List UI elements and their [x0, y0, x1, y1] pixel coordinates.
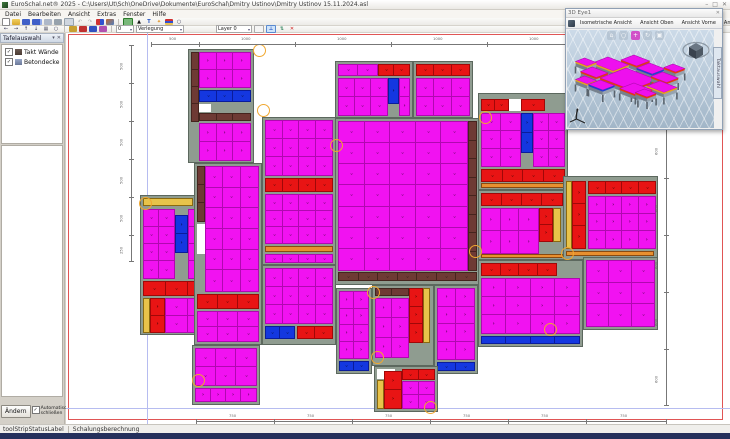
plan-panel-cell[interactable] — [469, 178, 476, 197]
plan-panel-cell[interactable]: › — [365, 164, 391, 185]
plan-panel-cell[interactable]: › — [339, 228, 365, 249]
plan-panel-cell[interactable]: › — [400, 97, 409, 115]
plan-panel-cell[interactable]: › — [482, 264, 501, 275]
plan-panel-cell[interactable]: › — [365, 122, 391, 143]
plan-panel-cell[interactable]: › — [522, 133, 532, 152]
plan-panel-cell[interactable]: › — [441, 164, 467, 185]
plan-panel-cell[interactable]: › — [417, 273, 437, 280]
taktauswahl-side-tab[interactable]: Taktauswahl — [713, 47, 722, 99]
plan-panel-block[interactable]: ›› — [384, 371, 402, 409]
plan-panel-cell[interactable]: › — [622, 214, 639, 231]
plan-panel-cell[interactable]: › — [339, 97, 355, 115]
menu-item-extras[interactable]: Extras — [97, 11, 116, 18]
plan-panel-cell[interactable]: › — [519, 209, 538, 231]
plan-panel-cell[interactable]: › — [266, 327, 280, 338]
plan-panel-block[interactable]: ›››››››› — [143, 209, 175, 279]
plan-panel-cell[interactable]: › — [456, 324, 474, 342]
plan-panel-cell[interactable]: › — [437, 273, 457, 280]
plan-panel-block[interactable]: ›› — [297, 326, 333, 339]
plan-panel-cell[interactable]: › — [482, 149, 501, 166]
plan-panel-cell[interactable]: › — [200, 91, 217, 101]
plan-panel-cell[interactable]: › — [241, 389, 256, 401]
plan-panel-block[interactable]: ›››››› — [416, 78, 470, 116]
view-button-ansicht-seite[interactable]: Ansicht Seite — [721, 18, 730, 28]
plan-panel-cell[interactable]: › — [217, 142, 234, 160]
plan-panel-cell[interactable]: › — [316, 179, 333, 191]
plan-panel-cell[interactable]: › — [198, 312, 218, 327]
plan-panel-cell[interactable]: › — [378, 273, 398, 280]
plan-panel-cell[interactable]: › — [501, 149, 520, 166]
plan-panel-cell[interactable]: › — [223, 229, 240, 250]
tree-item-checkbox[interactable]: ✓ — [5, 48, 13, 56]
plan-panel-cell[interactable]: › — [340, 325, 354, 342]
plan-panel-cell[interactable] — [469, 159, 476, 178]
plan-panel-cell[interactable]: › — [241, 188, 258, 209]
maximize-button[interactable]: □ — [712, 1, 718, 8]
blank-tool-icon[interactable] — [254, 25, 264, 33]
orbit-icon[interactable]: ○ — [619, 31, 628, 40]
plan-panel-cell[interactable]: › — [198, 295, 218, 308]
plan-panel-cell[interactable]: › — [639, 231, 656, 248]
plan-panel-cell[interactable]: › — [266, 227, 283, 243]
plan-panel-cell[interactable]: › — [217, 124, 234, 142]
plan-panel-cell[interactable]: › — [159, 244, 174, 261]
plan-panel-cell[interactable]: › — [573, 182, 585, 204]
plan-panel-cell[interactable]: › — [606, 231, 623, 248]
plan-panel-cell[interactable]: › — [233, 53, 250, 70]
plan-panel-cell[interactable]: › — [456, 273, 476, 280]
plan-panel-block[interactable]: ›››››››››››› — [265, 194, 333, 244]
plan-panel-cell[interactable]: › — [639, 182, 656, 193]
undo-icon[interactable]: ↶ — [76, 19, 84, 25]
plan-panel-cell[interactable]: › — [523, 170, 544, 181]
plan-panel-cell[interactable]: › — [482, 231, 501, 253]
plan-panel-cell[interactable]: › — [354, 362, 368, 370]
plan-panel-cell[interactable]: › — [639, 214, 656, 231]
plan-panel-cell[interactable]: › — [283, 269, 300, 287]
plan-panel-block[interactable]: ›››› — [481, 169, 565, 182]
plan-panel-cell[interactable]: › — [390, 164, 416, 185]
arrow-right-icon[interactable]: → — [12, 26, 20, 32]
plan-panel-block[interactable]: ›››››› — [199, 123, 251, 161]
plan-panel-cell[interactable]: › — [299, 139, 316, 157]
plan-panel-cell[interactable]: › — [542, 194, 562, 205]
plan-panel-cell[interactable]: › — [519, 264, 538, 275]
plan-panel-cell[interactable]: › — [403, 395, 419, 408]
plan-panel-cell[interactable]: › — [371, 79, 387, 97]
plan-panel-cell[interactable]: › — [299, 211, 316, 227]
plan-panel-block[interactable]: ›››››››››››››››››› — [205, 166, 259, 292]
plan-panel-cell[interactable]: › — [238, 295, 258, 308]
plan-panel-cell[interactable]: › — [555, 297, 579, 315]
plan-panel-cell[interactable]: › — [549, 131, 564, 148]
minimize-button[interactable]: – — [705, 1, 708, 8]
plan-panel-block[interactable]: ›› — [481, 99, 509, 111]
menu-item-ansicht[interactable]: Ansicht — [68, 11, 90, 18]
plan-panel-cell[interactable]: › — [606, 197, 623, 214]
plan-panel-cell[interactable]: › — [316, 255, 333, 262]
plan-panel-cell[interactable]: › — [632, 304, 654, 326]
plan-panel-cell[interactable]: › — [211, 389, 226, 401]
plan-panel-cell[interactable]: › — [316, 269, 333, 287]
plan-strip-orange[interactable] — [481, 254, 563, 258]
plan-panel-cell[interactable]: › — [549, 114, 564, 131]
plan-panel-cell[interactable]: › — [339, 122, 365, 143]
plan-panel-cell[interactable]: › — [392, 318, 408, 337]
plan-panel-cell[interactable]: › — [315, 327, 332, 338]
plan-panel-block[interactable]: ›››› — [195, 388, 257, 402]
plan-panel-block[interactable] — [199, 113, 251, 121]
plan-panel-cell[interactable]: › — [144, 282, 166, 295]
plan-panel-cell[interactable] — [469, 196, 476, 215]
plan-panel-cell[interactable]: › — [394, 65, 409, 75]
plan-panel-cell[interactable]: › — [299, 269, 316, 287]
plan-panel-block[interactable]: ››››››››› — [586, 260, 655, 327]
plan-panel-cell[interactable]: › — [456, 363, 474, 370]
plan-panel-block[interactable]: ››› — [197, 294, 259, 309]
plan-panel-cell[interactable]: › — [482, 131, 501, 148]
plan-panel-cell[interactable]: › — [166, 299, 188, 316]
plan-panel-block[interactable]: ›››››››› — [437, 288, 475, 360]
plan-panel-cell[interactable]: › — [392, 338, 408, 357]
plan-panel-cell[interactable]: › — [589, 214, 606, 231]
plan-panel-cell[interactable]: › — [151, 299, 164, 316]
plan-panel-cell[interactable]: › — [419, 382, 435, 395]
plan-panel-cell[interactable]: › — [379, 65, 394, 75]
plan-panel-cell[interactable]: › — [283, 121, 300, 139]
plan-panel-cell[interactable] — [198, 203, 204, 221]
plan-panel-cell[interactable]: › — [339, 65, 358, 75]
plan-panel-block[interactable] — [197, 166, 205, 222]
plan-panel-block[interactable]: ›››››››››››› — [481, 278, 580, 334]
plan-panel-cell[interactable]: › — [609, 261, 631, 283]
plan-panel-cell[interactable] — [200, 114, 217, 120]
view-button-isometrische-ansicht[interactable]: Isometrische Ansicht — [577, 18, 635, 28]
plan-panel-cell[interactable] — [192, 87, 198, 104]
plan-panel-cell[interactable]: › — [371, 97, 387, 115]
plan-panel-cell[interactable]: › — [365, 143, 391, 164]
plan-panel-cell[interactable]: › — [392, 299, 408, 318]
viewer3d-viewport[interactable]: ⌂○+↻▣ — [567, 30, 714, 128]
viewer3d-titlebar[interactable]: 3D Eye1 ✕ — [566, 9, 722, 18]
plan-panel-cell[interactable]: › — [206, 229, 223, 250]
plan-panel-cell[interactable]: › — [316, 121, 333, 139]
menu-item-hilfe[interactable]: Hilfe — [152, 11, 166, 18]
change-button[interactable]: Ändern — [1, 405, 31, 418]
plan-panel-cell[interactable]: › — [587, 283, 609, 305]
plan-panel-cell[interactable]: › — [283, 211, 300, 227]
plan-panel-block[interactable]: ›› — [437, 362, 475, 371]
plan-panel-cell[interactable]: › — [299, 255, 316, 262]
plan-panel-cell[interactable]: › — [298, 327, 315, 338]
plan-panel-cell[interactable]: › — [482, 315, 506, 333]
plan-panel-cell[interactable]: › — [456, 342, 474, 360]
plan-panel-cell[interactable]: › — [316, 287, 333, 305]
plan-panel-cell[interactable]: › — [159, 227, 174, 244]
plan-panel-cell[interactable]: › — [506, 315, 530, 333]
print-preview-icon[interactable] — [64, 18, 74, 26]
plan-panel-cell[interactable]: › — [416, 164, 442, 185]
plan-panel-cell[interactable]: › — [417, 97, 434, 115]
plan-strip-orange[interactable] — [566, 251, 654, 256]
plan-panel-block[interactable]: ››› — [199, 90, 251, 102]
plan-panel-cell[interactable]: › — [266, 195, 283, 211]
plan-panel-cell[interactable]: › — [151, 316, 164, 333]
plan-panel-cell[interactable]: › — [198, 327, 218, 342]
plan-panel-cell[interactable] — [233, 114, 250, 120]
plan-panel-cell[interactable]: › — [390, 228, 416, 249]
plan-panel-cell[interactable]: › — [233, 91, 250, 101]
plan-panel-block[interactable]: ›› — [378, 64, 410, 76]
plan-panel-cell[interactable]: › — [217, 70, 234, 87]
plan-panel-cell[interactable]: › — [200, 124, 217, 142]
plan-panel-block[interactable]: ››› — [416, 64, 470, 76]
palette-icon[interactable] — [106, 19, 114, 25]
plan-panel-cell[interactable]: › — [238, 312, 258, 327]
plan-panel-cell[interactable]: › — [506, 279, 530, 297]
plan-panel-cell[interactable]: › — [144, 227, 159, 244]
plan-panel-block[interactable]: ›› — [521, 113, 533, 153]
plan-panel-cell[interactable] — [198, 167, 204, 185]
views-icon[interactable] — [44, 19, 52, 25]
plan-panel-block[interactable]: ›› — [402, 369, 435, 380]
plan-panel-cell[interactable]: › — [354, 292, 368, 309]
plan-panel-cell[interactable]: › — [206, 188, 223, 209]
plan-panel-cell[interactable]: › — [299, 157, 316, 175]
plan-panel-cell[interactable]: › — [400, 79, 409, 97]
plan-panel-cell[interactable]: › — [452, 65, 469, 75]
plan-panel-cell[interactable]: › — [355, 97, 371, 115]
plan-panel-cell[interactable]: › — [216, 349, 236, 367]
save-all-icon[interactable] — [32, 19, 42, 25]
plan-panel-cell[interactable]: › — [632, 283, 654, 305]
plan-panel-cell[interactable]: › — [482, 100, 495, 110]
plan-panel-cell[interactable]: › — [266, 139, 283, 157]
plan-panel-cell[interactable] — [392, 289, 408, 295]
plan-panel-cell[interactable]: › — [390, 249, 416, 270]
plan-panel-block[interactable]: ›› — [339, 361, 369, 371]
plan-panel-cell[interactable]: › — [339, 79, 355, 97]
plan-panel-cell[interactable]: › — [434, 79, 451, 97]
plan-panel-cell[interactable]: › — [283, 305, 300, 323]
plan-panel-cell[interactable]: › — [223, 270, 240, 291]
plan-panel-cell[interactable]: › — [236, 349, 256, 367]
plan-strip-orange[interactable] — [265, 246, 333, 252]
plan-panel-cell[interactable]: › — [534, 131, 549, 148]
plan-panel-cell[interactable]: › — [206, 167, 223, 188]
plan-panel-block[interactable]: ›› — [265, 326, 295, 339]
plan-panel-cell[interactable]: › — [283, 255, 300, 262]
plan-panel-cell[interactable]: › — [218, 312, 238, 327]
plan-panel-cell[interactable]: › — [501, 131, 520, 148]
plan-panel-block[interactable]: ›› — [399, 78, 410, 116]
plan-panel-cell[interactable]: › — [438, 289, 456, 307]
plan-panel-cell[interactable]: › — [241, 167, 258, 188]
plan-panel-cell[interactable]: › — [609, 304, 631, 326]
plan-panel-cell[interactable]: › — [589, 197, 606, 214]
plan-panel-cell[interactable]: › — [501, 114, 520, 131]
plan-panel-cell[interactable]: › — [159, 210, 174, 227]
plan-panel-cell[interactable] — [192, 70, 198, 87]
plan-panel-cell[interactable]: › — [416, 185, 442, 206]
plan-panel-cell[interactable]: › — [144, 261, 159, 278]
pin-icon[interactable]: ▾ — [52, 35, 55, 41]
zoom-icon[interactable]: ○ — [175, 19, 183, 25]
plan-panel-cell[interactable]: › — [176, 216, 187, 234]
plan-panel-cell[interactable]: › — [416, 249, 442, 270]
tree-item-betondecke[interactable]: ✓Betondecke — [2, 57, 62, 67]
plan-panel-cell[interactable]: › — [266, 211, 283, 227]
plan-panel-cell[interactable]: › — [506, 297, 530, 315]
perpendicular-tool-icon[interactable]: ⊥ — [266, 25, 276, 33]
takt-purple-icon[interactable] — [99, 26, 107, 32]
plan-panel-cell[interactable]: › — [200, 142, 217, 160]
plan-panel-cell[interactable]: › — [283, 157, 300, 175]
arrow-up-icon[interactable]: ↑ — [22, 26, 30, 32]
plan-panel-cell[interactable]: › — [438, 342, 456, 360]
plan-panel-block[interactable]: ›› — [338, 64, 378, 76]
new-file-icon[interactable] — [2, 18, 10, 26]
plan-panel-cell[interactable]: › — [441, 249, 467, 270]
layer-colors-icon[interactable] — [165, 19, 173, 25]
plan-panel-cell[interactable]: › — [540, 209, 552, 225]
plan-strip-yellow[interactable] — [423, 288, 430, 343]
close-button[interactable]: ✕ — [722, 1, 727, 8]
plan-panel-cell[interactable]: › — [166, 282, 188, 295]
plan-panel-block[interactable]: ›››››› — [533, 113, 565, 167]
plan-panel-block[interactable]: ›››››› — [338, 78, 388, 116]
plan-strip-yellow[interactable] — [377, 380, 384, 409]
plan-panel-cell[interactable]: › — [622, 182, 639, 193]
plan-panel-cell[interactable]: › — [355, 79, 371, 97]
plan-panel-block[interactable]: ›››››››››››› — [265, 268, 333, 324]
plan-panel-cell[interactable]: › — [587, 261, 609, 283]
plan-panel-cell[interactable]: › — [365, 185, 391, 206]
plan-panel-cell[interactable]: › — [339, 273, 359, 280]
plan-panel-cell[interactable]: › — [223, 208, 240, 229]
plan-panel-cell[interactable]: › — [316, 211, 333, 227]
plan-panel-cell[interactable]: › — [622, 197, 639, 214]
plan-panel-cell[interactable]: › — [206, 250, 223, 271]
plan-panel-cell[interactable]: › — [482, 209, 501, 231]
plan-panel-cell[interactable]: › — [538, 264, 557, 275]
plan-panel-cell[interactable]: › — [606, 214, 623, 231]
menu-item-datei[interactable]: Datei — [5, 11, 21, 18]
home-icon[interactable]: ⌂ — [607, 31, 616, 40]
plan-panel-block[interactable] — [481, 336, 580, 344]
plan-strip-orange[interactable] — [481, 183, 565, 188]
plan-panel-cell[interactable]: › — [441, 228, 467, 249]
plan-panel-cell[interactable] — [192, 104, 198, 121]
plan-panel-cell[interactable]: › — [339, 164, 365, 185]
plan-panel-cell[interactable]: › — [416, 143, 442, 164]
plan-panel-block[interactable]: ›› — [175, 215, 188, 253]
plan-panel-cell[interactable]: › — [589, 182, 606, 193]
plan-panel-cell[interactable]: › — [555, 315, 579, 333]
plan-panel-cell[interactable]: › — [441, 122, 467, 143]
plan-panel-cell[interactable]: › — [495, 100, 508, 110]
zoom2-icon[interactable]: ○ — [52, 26, 60, 32]
plan-panel-cell[interactable] — [506, 337, 530, 343]
plan-panel-cell[interactable]: › — [241, 250, 258, 271]
plan-panel-cell[interactable]: › — [359, 273, 379, 280]
plan-panel-cell[interactable]: › — [417, 65, 434, 75]
plan-panel-cell[interactable]: › — [438, 324, 456, 342]
grid-icon[interactable]: ▦ — [42, 26, 50, 32]
plan-panel-cell[interactable]: › — [639, 197, 656, 214]
plan-panel-cell[interactable]: › — [358, 65, 377, 75]
plan-panel-cell[interactable]: › — [223, 250, 240, 271]
plan-panel-cell[interactable]: › — [390, 122, 416, 143]
plan-panel-cell[interactable]: › — [196, 389, 211, 401]
plan-panel-cell[interactable]: › — [456, 307, 474, 325]
plan-panel-cell[interactable]: › — [223, 167, 240, 188]
plan-panel-block[interactable]: ›››› — [481, 263, 557, 276]
plan-panel-cell[interactable]: › — [609, 283, 631, 305]
plan-panel-cell[interactable]: › — [241, 208, 258, 229]
plan-panel-block[interactable] — [191, 52, 199, 122]
plan-panel-cell[interactable]: › — [238, 327, 258, 342]
plan-panel-cell[interactable]: › — [316, 157, 333, 175]
takt-yellow-icon[interactable] — [69, 26, 77, 32]
plan-panel-cell[interactable]: › — [385, 390, 401, 408]
plan-panel-block[interactable]: ››››››› — [338, 272, 477, 281]
view-button-ansicht-vorne[interactable]: Ansicht Vorne — [679, 18, 719, 28]
t-square-icon[interactable]: T — [145, 19, 153, 25]
save-icon[interactable] — [22, 19, 30, 25]
plan-panel-block[interactable]: ›››››››› — [339, 291, 369, 359]
plan-panel-block[interactable]: ›››››› — [199, 52, 251, 88]
plan-panel-cell[interactable]: › — [241, 229, 258, 250]
format-paint-icon[interactable] — [96, 19, 104, 25]
plan-panel-cell[interactable]: › — [501, 264, 520, 275]
plan-panel-cell[interactable]: › — [196, 349, 216, 367]
plan-panel-cell[interactable]: › — [217, 91, 234, 101]
plan-panel-block[interactable]: ›››››››››››› — [265, 120, 333, 176]
plan-panel-cell[interactable]: › — [283, 227, 300, 243]
plan-panel-cell[interactable]: › — [223, 188, 240, 209]
plan-panel-cell[interactable]: › — [266, 287, 283, 305]
plan-panel-cell[interactable]: › — [266, 121, 283, 139]
plan-panel-cell[interactable]: › — [452, 97, 469, 115]
plan-panel-cell[interactable]: › — [299, 179, 316, 191]
viewer3d-close-icon[interactable]: ✕ — [716, 10, 720, 16]
plan-panel-block[interactable]: ›››› — [265, 254, 333, 263]
plan-panel-block[interactable]: ››› — [572, 181, 586, 249]
plan-panel-cell[interactable]: › — [283, 179, 300, 191]
plan-panel-cell[interactable]: › — [200, 70, 217, 87]
plan-panel-cell[interactable] — [531, 337, 555, 343]
plan-panel-cell[interactable]: › — [410, 289, 422, 307]
plan-panel-block[interactable]: ›››››› — [197, 311, 259, 342]
plan-panel-cell[interactable]: › — [340, 342, 354, 359]
plan-panel-cell[interactable] — [482, 337, 506, 343]
plan-panel-cell[interactable]: › — [233, 70, 250, 87]
plan-panel-cell[interactable]: › — [206, 208, 223, 229]
plan-panel-cell[interactable]: › — [482, 194, 502, 205]
plan-panel-block[interactable]: ››› — [409, 288, 423, 343]
plan-panel-cell[interactable]: › — [438, 307, 456, 325]
plan-panel-cell[interactable]: › — [216, 367, 236, 385]
plan-panel-cell[interactable]: › — [403, 382, 419, 395]
takt-blue-icon[interactable] — [89, 26, 97, 32]
plan-panel-cell[interactable]: › — [218, 327, 238, 342]
plan-panel-cell[interactable]: › — [266, 255, 283, 262]
plan-panel-cell[interactable]: › — [482, 170, 503, 181]
plan-panel-cell[interactable]: › — [159, 261, 174, 278]
plan-panel-cell[interactable]: › — [283, 139, 300, 157]
plan-panel-block[interactable]: ›››› — [265, 178, 333, 192]
